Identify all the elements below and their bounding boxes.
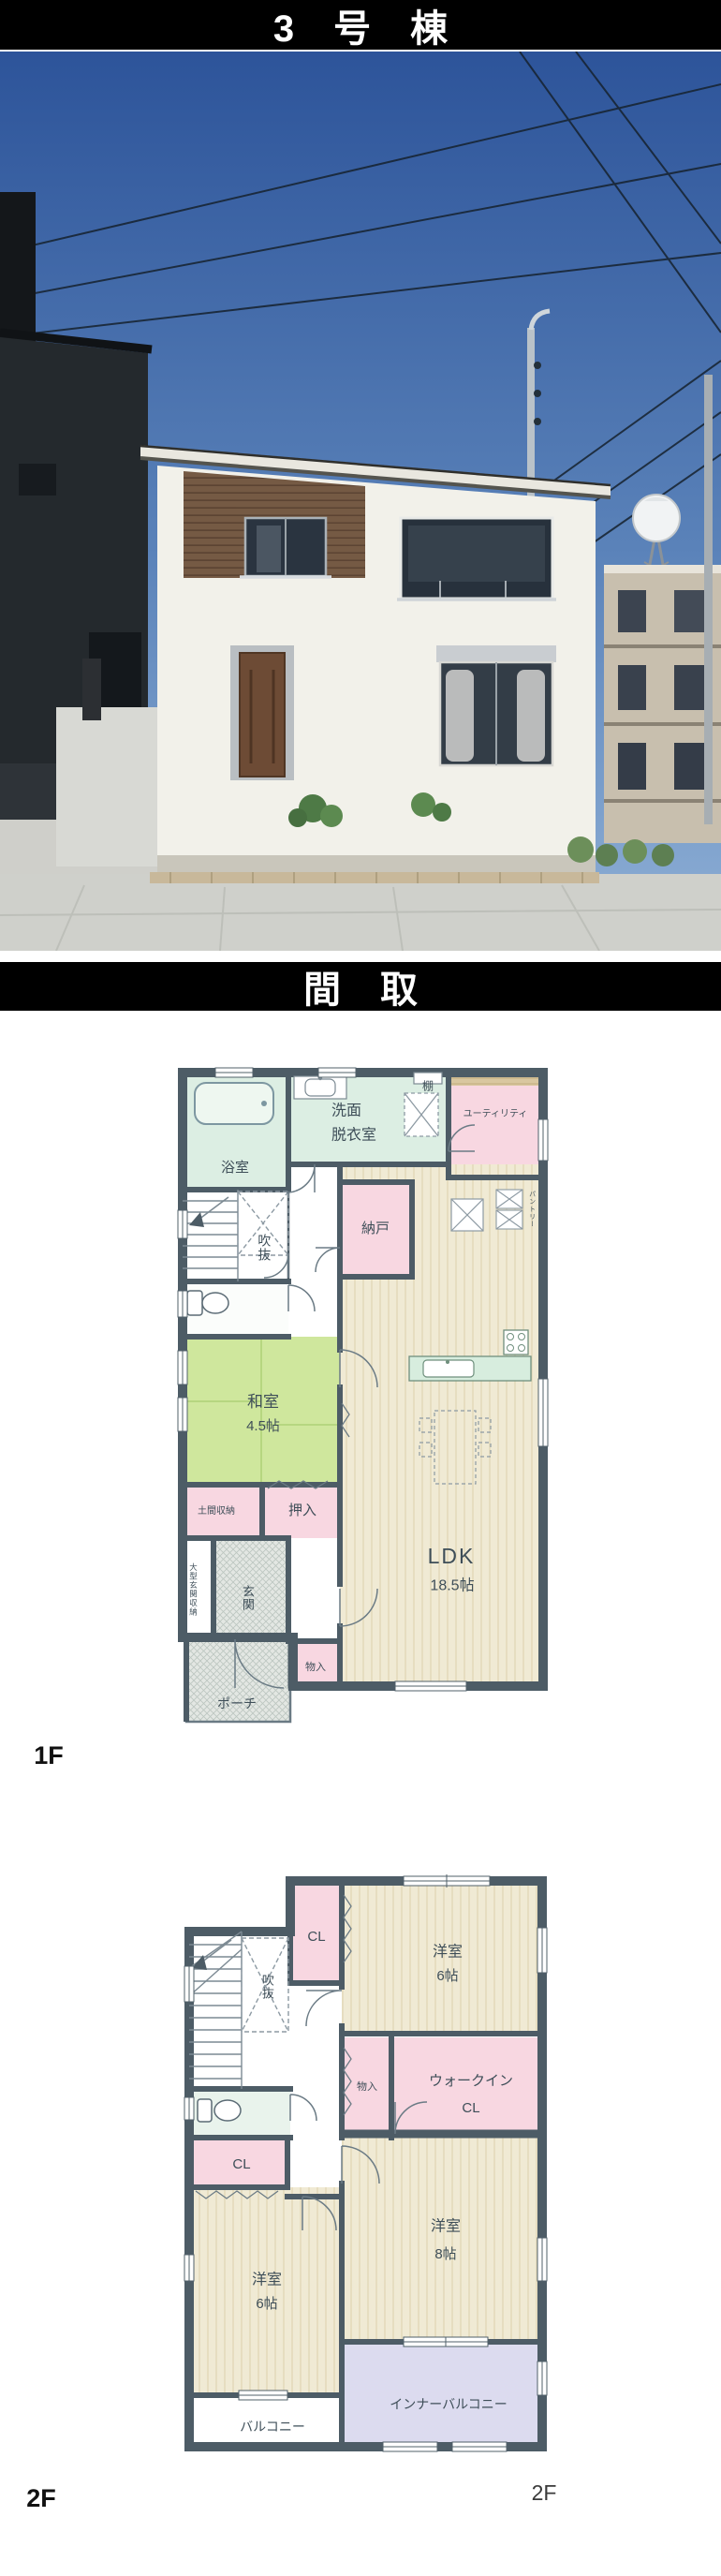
washroom-sink [294,1076,346,1099]
room-label-closet-left: CL [232,2157,250,2172]
room-label-inner-balcony: インナーバルコニー [390,2398,508,2412]
room-label-storeroom: 納戸 [361,1221,390,1236]
right-balcony-window [397,518,556,600]
room-label-storage-2f: 物入 [357,2082,377,2094]
room-label-storage-1f: 物入 [305,1663,326,1674]
toilet-2f [198,2099,241,2122]
floor-label-2f-left: 2F [26,2485,56,2511]
room-label-wic-1: ウォークイン [429,2074,513,2089]
room-label-bedroom6a-size: 6帖 [436,1969,458,1984]
room-label-void-1f: 吹抜 [257,1234,272,1262]
room-label-doma-storage: 土間収納 [198,1507,235,1517]
refrigerator-space [451,1199,483,1231]
left-balcony-window [240,518,331,577]
floor-label-1f: 1F [34,1742,64,1769]
room-label-pantry: パントリー [528,1191,535,1228]
room-label-bath: 浴室 [221,1161,249,1176]
room-label-washroom-2: 脱衣室 [331,1129,376,1145]
room-label-wic-2: CL [462,2101,479,2116]
main-house [140,445,611,874]
room-label-entrance: 玄関 [241,1585,254,1611]
room-label-japanese-room: 和室 [247,1394,279,1411]
listing-page: 3号棟 [0,0,721,2576]
room-label-balcony: バルコニー [240,2421,305,2435]
room-label-void-2f: 吹抜 [260,1974,273,2000]
room-label-entrance-storage: 大型玄関収納 [189,1563,198,1617]
room-label-washroom-1: 洗面 [331,1104,361,1120]
room-label-bedroom8-size: 8帖 [434,2247,456,2262]
floorplan-title-bar: 間取 [0,962,721,1011]
room-label-ldk: LDK [428,1545,476,1567]
room-label-japanese-room-size: 4.5帖 [246,1419,280,1434]
building-title: 3号棟 [273,0,487,52]
toilet-1f [187,1291,228,1315]
building-title-bar: 3号棟 [0,0,721,50]
floorplan-title: 間取 [303,959,457,1014]
first-floor-window [436,645,556,765]
floor-label-2f-right: 2F [532,2481,557,2504]
room-label-bedroom8: 洋室 [431,2220,461,2236]
room-label-bedroom6b: 洋室 [252,2273,282,2289]
washroom-closet [405,1093,438,1136]
room-label-bedroom6a: 洋室 [433,1946,463,1962]
room-label-oshiire: 押入 [288,1503,316,1518]
house-photo [0,52,721,951]
room-label-utility: ユーティリティ [463,1110,528,1120]
room-label-ldk-size: 18.5帖 [430,1579,474,1595]
room-label-porch: ポーチ [217,1697,257,1711]
entrance-door [230,645,294,780]
room-label-shelf: 棚 [422,1081,434,1093]
room-label-bedroom6b-size: 6帖 [256,2297,277,2312]
room-label-closet-top: CL [307,1930,325,1945]
bathtub [195,1083,273,1124]
